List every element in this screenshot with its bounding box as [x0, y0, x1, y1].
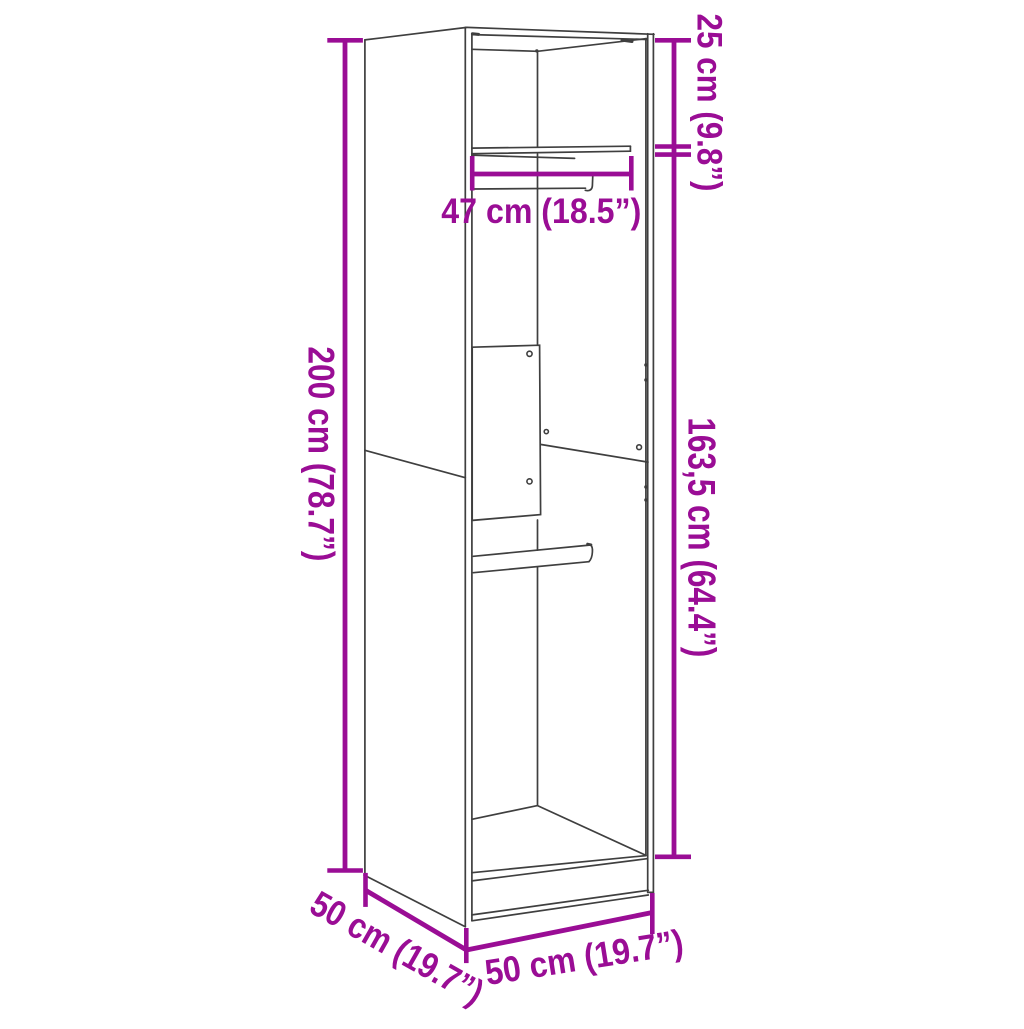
- svg-text:163,5 cm (64.4”): 163,5 cm (64.4”): [680, 417, 723, 657]
- svg-text:25 cm (9.8”): 25 cm (9.8”): [690, 14, 729, 192]
- svg-text:200 cm (78.7”): 200 cm (78.7”): [301, 346, 342, 561]
- svg-text:47 cm (18.5”): 47 cm (18.5”): [441, 192, 641, 231]
